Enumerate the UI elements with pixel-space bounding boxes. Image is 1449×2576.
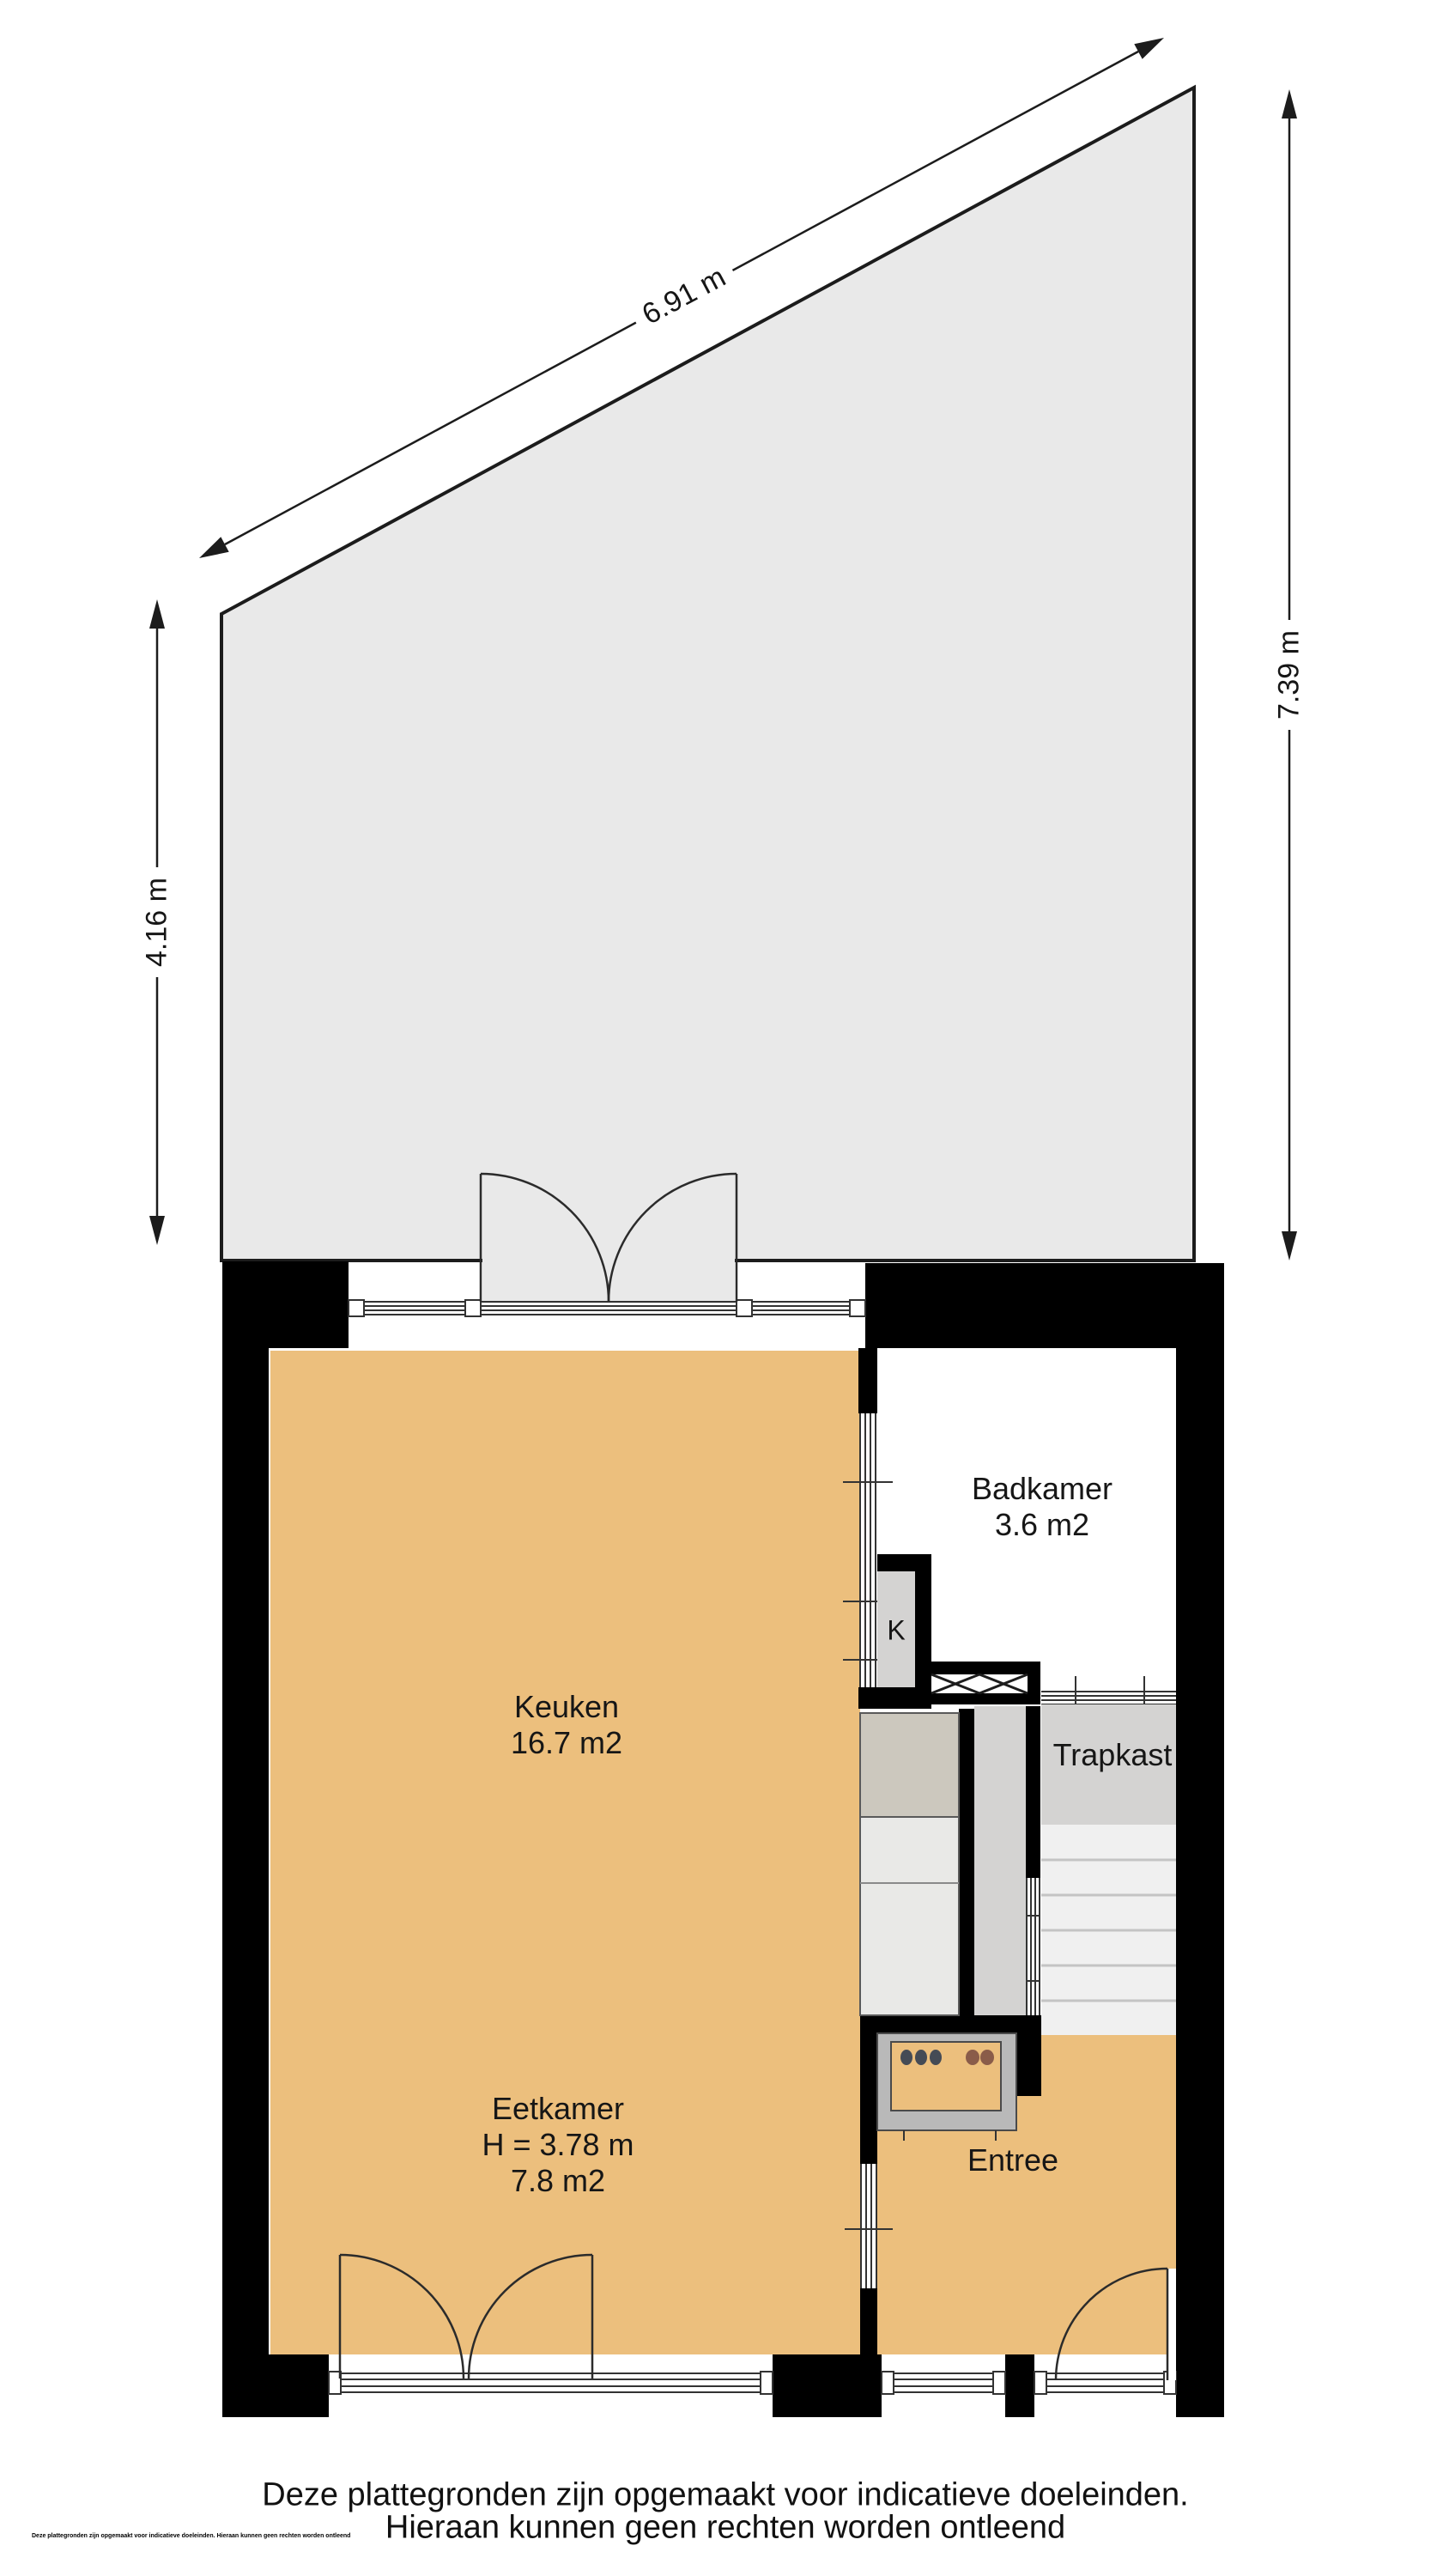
wall-shaft-top	[930, 1662, 1040, 1674]
burner-icon	[915, 2050, 927, 2065]
burner-icon	[980, 2050, 994, 2065]
wall-bottom-pier-a	[773, 2354, 882, 2417]
kitchen-counter-top-block	[860, 1713, 959, 1817]
wall-eetkamer-entree-upper	[860, 2035, 877, 2164]
floorplan-drawing	[0, 0, 1449, 2576]
window-top	[349, 1300, 865, 1316]
floorplan-page: 6.91 m 7.39 m 4.16 m Badkamer 3.6 m2 Keu…	[0, 0, 1449, 2576]
burner-icon	[900, 2050, 912, 2065]
stove	[877, 2033, 1016, 2141]
window-bottom	[329, 2372, 1176, 2394]
wall-kast-right	[915, 1554, 931, 1687]
entree-name: Entree	[967, 2142, 1058, 2178]
trapkast-name: Trapkast	[1053, 1737, 1173, 1773]
keuken-name: Keuken	[514, 1689, 619, 1725]
disclaimer-fineprint: Deze plattegronden zijn opgemaakt voor i…	[32, 2533, 350, 2539]
disclaimer-line2: Hieraan kunnen geen rechten worden ontle…	[385, 2510, 1065, 2547]
kitchen-tall-cabinet	[974, 1706, 1026, 2015]
wall-kast-bottom	[858, 1687, 931, 1709]
wall-keuken-badkamer-top	[858, 1348, 877, 1413]
wall-eetkamer-entree-lower	[860, 2288, 877, 2355]
eetkamer-area: 7.8 m2	[511, 2163, 605, 2199]
wall-stove-notch	[1016, 2033, 1041, 2096]
badkamer-area: 3.6 m2	[995, 1507, 1089, 1543]
wall-right	[1176, 1263, 1224, 2417]
dimension-label-left: 4.16 m	[141, 867, 174, 977]
arrowhead-icon	[1282, 89, 1297, 118]
shaft-box	[931, 1674, 1028, 1693]
wall-top-right	[865, 1263, 1224, 1348]
eetkamer-name: Eetkamer	[492, 2091, 624, 2127]
arrowhead-icon	[149, 1216, 165, 1245]
disclaimer-line1: Deze plattegronden zijn opgemaakt voor i…	[262, 2477, 1189, 2514]
kitchen-units	[860, 1706, 1026, 2141]
wall-top-left	[222, 1261, 349, 1348]
keuken-area: 16.7 m2	[511, 1725, 622, 1761]
kitchen-counter-lower-block	[860, 1817, 959, 2015]
wall-kitchen-bottom	[860, 2015, 1041, 2035]
badkamer-name: Badkamer	[972, 1471, 1113, 1507]
arrowhead-icon	[199, 537, 229, 558]
arrowhead-icon	[1282, 1231, 1297, 1261]
wall-bottom-pier-b	[1005, 2354, 1034, 2417]
arrowhead-icon	[149, 599, 165, 629]
burner-icon	[966, 2050, 979, 2065]
dimension-label-right: 7.39 m	[1273, 620, 1307, 730]
burner-icon	[930, 2050, 942, 2065]
kast-label: K	[887, 1615, 905, 1647]
wall-shaft-right	[1028, 1674, 1040, 1693]
wall-shaft-bottom	[930, 1693, 1040, 1704]
wall-kitchen-stairs	[959, 1709, 974, 2015]
keuken-eetkamer-floor	[270, 1351, 860, 2354]
wall-stairs-upper	[1026, 1706, 1040, 1878]
arrowhead-icon	[1134, 38, 1164, 59]
wall-bottom-left-corner	[222, 2354, 329, 2417]
entree-door-recess	[1167, 2269, 1176, 2380]
wall-left	[222, 1348, 269, 2354]
eetkamer-height: H = 3.78 m	[482, 2127, 634, 2163]
shaft	[931, 1674, 1028, 1693]
